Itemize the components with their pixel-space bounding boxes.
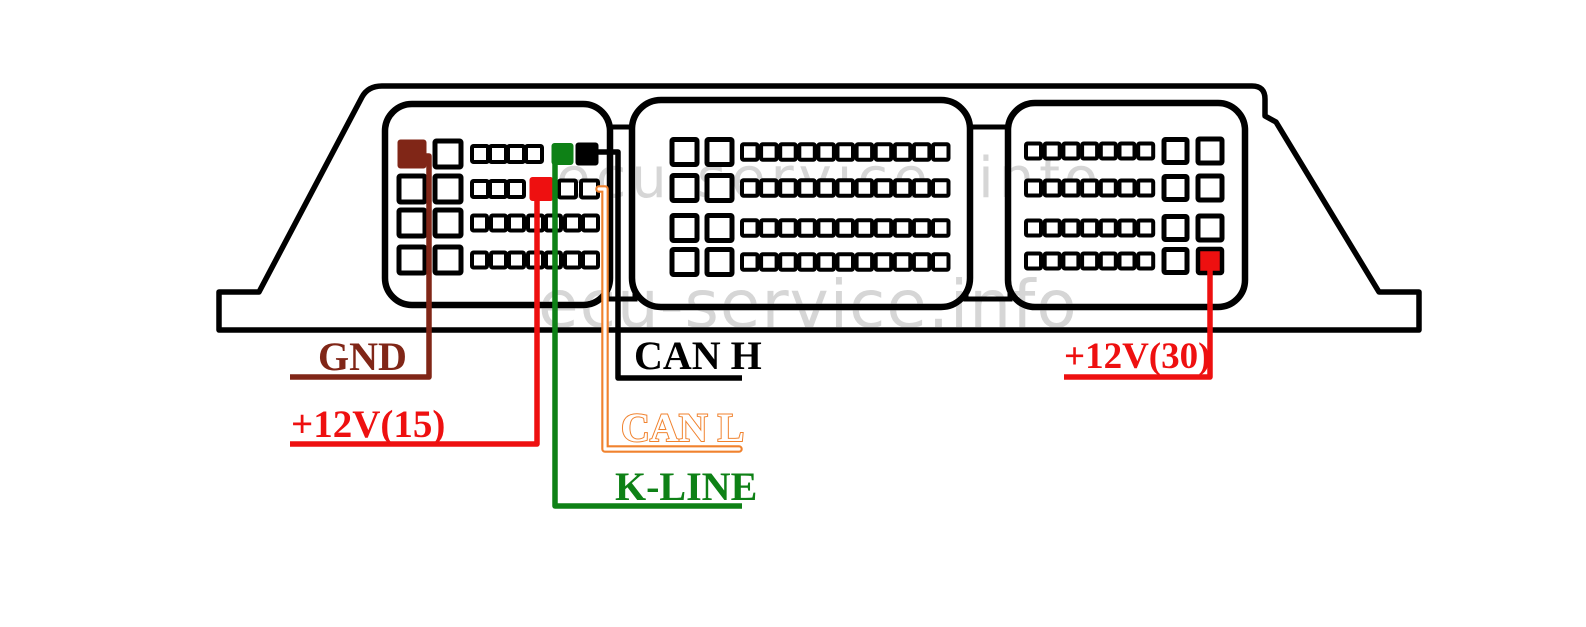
pin: [742, 144, 758, 160]
pin: [761, 180, 777, 196]
pin: [1164, 140, 1187, 163]
pin: [761, 144, 777, 160]
pin: [1138, 254, 1153, 269]
pin: [1045, 144, 1060, 159]
plus12v-30-label: +12V(30): [1064, 336, 1210, 377]
pin: [1101, 144, 1116, 159]
pin: [857, 254, 873, 270]
pin: [838, 144, 854, 160]
pin: [472, 181, 488, 197]
pin: [491, 253, 506, 268]
pin: [1063, 254, 1078, 269]
pin: [472, 253, 487, 268]
pin: [799, 180, 815, 196]
pin: [761, 220, 777, 236]
pin: [933, 254, 949, 270]
pin: [914, 144, 930, 160]
pin: [895, 180, 911, 196]
pin: [1082, 144, 1097, 159]
pin: [857, 220, 873, 236]
pin: [490, 181, 506, 197]
can-h-pin: [577, 144, 597, 164]
pin: [933, 180, 949, 196]
pin: [435, 210, 461, 236]
pin: [818, 144, 834, 160]
pin: [672, 140, 697, 165]
pin: [1101, 254, 1116, 269]
pin: [399, 210, 425, 236]
plus12v-15-pin: [531, 179, 552, 200]
pin: [1082, 181, 1097, 196]
pin: [799, 144, 815, 160]
pin: [583, 216, 598, 231]
pin: [857, 180, 873, 196]
pin: [399, 176, 425, 202]
pin: [509, 216, 524, 231]
pin: [583, 253, 598, 268]
pin: [799, 254, 815, 270]
pin: [508, 181, 524, 197]
pin: [1120, 254, 1135, 269]
pin: [399, 247, 425, 273]
plus12v-15-label: +12V(15): [291, 403, 445, 446]
pin: [472, 146, 488, 162]
pin: [1164, 250, 1187, 273]
pin: [838, 180, 854, 196]
pin: [780, 144, 796, 160]
pin: [933, 220, 949, 236]
pin: [1026, 181, 1041, 196]
pin: [565, 216, 580, 231]
pin: [838, 220, 854, 236]
pin: [1082, 221, 1097, 236]
pin: [707, 216, 732, 241]
pin: [1198, 139, 1222, 163]
ecu-pinout-diagram: ecu-service. info ecu-service.info GND +…: [0, 0, 1586, 627]
can-l-label: CAN L: [621, 405, 744, 450]
pin: [435, 247, 461, 273]
k-line-pin: [553, 145, 572, 164]
pin: [491, 216, 506, 231]
k-line-label: K-LINE: [615, 464, 757, 509]
pin: [799, 220, 815, 236]
pin: [876, 180, 892, 196]
plus12v-30-pin: [1198, 249, 1222, 273]
pin: [1026, 254, 1041, 269]
pin: [435, 141, 461, 167]
pin: [1026, 221, 1041, 236]
pin: [1198, 176, 1222, 200]
pin: [1198, 216, 1222, 240]
pin: [1082, 254, 1097, 269]
pin: [933, 144, 949, 160]
pin: [876, 220, 892, 236]
pin: [876, 144, 892, 160]
pin: [857, 144, 873, 160]
pin: [838, 254, 854, 270]
pin: [780, 180, 796, 196]
pin: [1138, 181, 1153, 196]
pin: [508, 146, 524, 162]
pin: [707, 250, 732, 275]
pin: [1101, 221, 1116, 236]
pin: [742, 220, 758, 236]
pin: [1138, 221, 1153, 236]
pin: [707, 176, 732, 201]
pin: [895, 220, 911, 236]
pin: [672, 176, 697, 201]
pin: [818, 180, 834, 196]
pin: [818, 220, 834, 236]
pin: [1026, 144, 1041, 159]
pin: [780, 220, 796, 236]
pin: [742, 180, 758, 196]
gnd-label: GND: [318, 334, 407, 379]
pin: [1063, 221, 1078, 236]
pin: [1138, 144, 1153, 159]
pin: [707, 140, 732, 165]
pin: [818, 254, 834, 270]
pin: [895, 254, 911, 270]
pin: [914, 180, 930, 196]
pin: [1101, 181, 1116, 196]
pin: [1120, 144, 1135, 159]
pin: [1120, 181, 1135, 196]
pin: [672, 250, 697, 275]
pin: [914, 254, 930, 270]
pin: [472, 216, 487, 231]
pin: [1063, 144, 1078, 159]
can-h-label: CAN H: [634, 333, 762, 378]
pin: [526, 146, 542, 162]
pin: [435, 176, 461, 202]
pin: [1120, 221, 1135, 236]
pin: [761, 254, 777, 270]
pin: [509, 253, 524, 268]
pin: [565, 253, 580, 268]
pin: [1164, 177, 1187, 200]
pin: [742, 254, 758, 270]
pin: [559, 181, 576, 198]
pin: [490, 146, 506, 162]
pin: [1063, 181, 1078, 196]
pin: [1045, 181, 1060, 196]
pin: [876, 254, 892, 270]
pin: [895, 144, 911, 160]
pin: [1164, 217, 1187, 240]
pin: [780, 254, 796, 270]
pin: [1045, 254, 1060, 269]
pin: [672, 216, 697, 241]
pin: [914, 220, 930, 236]
pin: [1045, 221, 1060, 236]
